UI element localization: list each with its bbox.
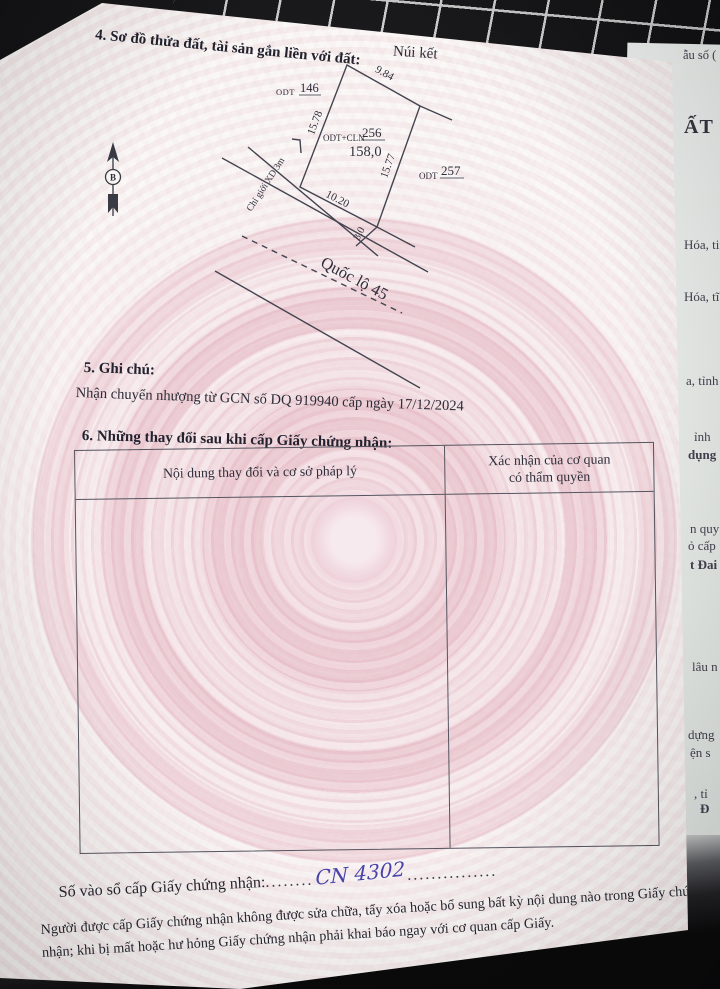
parcel-type: ODT+CLN: [323, 133, 365, 143]
adjacent-left-number: 146: [300, 81, 319, 95]
adjacent-right-number: 257: [441, 163, 461, 178]
north-letter: B: [110, 173, 116, 183]
parcel-diagram: Núi kết B ODT 146 O: [70, 30, 590, 400]
road-name-label: Quốc lộ 45: [318, 253, 392, 304]
adjacent-right-type: ODT: [419, 171, 438, 181]
bottom-edge-extension: [377, 227, 415, 247]
sheet-fragment: lâu n: [692, 659, 718, 675]
sheet-fragment: ẤT: [684, 116, 714, 139]
parcel-area: 158,0: [349, 144, 382, 160]
changes-table-col2-header-cell: Xác nhận của cơ quan có thẩm quyền: [445, 443, 653, 494]
changes-table-col2-empty-cell: [446, 492, 659, 848]
changes-table: Nội dung thay đổi và cơ sở pháp lý Xác n…: [74, 442, 660, 854]
changes-table-empty-row: [76, 492, 659, 853]
photographed-certificate: ẫu số ( ẤT Hóa, tin Hóa, tĩ a, tỉnh ỉnh …: [0, 0, 720, 989]
changes-table-col1-header-cell: Nội dung thay đổi và cơ sở pháp lý: [75, 446, 446, 499]
sheet-fragment: n quy: [690, 521, 719, 537]
north-arrow-icon: B: [106, 142, 121, 216]
adjacent-left-type: ODT: [276, 87, 295, 97]
sheet-fragment: dụng: [688, 447, 716, 463]
top-edge-extension: [420, 106, 452, 120]
sheet-fragment: Hóa, tĩ: [684, 289, 719, 305]
section5-title: 5. Ghi chú:: [83, 360, 155, 379]
certificate-page: 4. Sơ đồ thửa đất, tài sản gắn liền với …: [0, 0, 720, 989]
changes-table-col1-empty-cell: [76, 495, 451, 853]
construction-boundary-label: Chỉ giới XD 3m: [245, 156, 287, 214]
sheet-fragment: Hóa, tin: [684, 237, 720, 253]
edge-top-length: 9.84: [373, 63, 396, 83]
sheet-fragment: t Đai: [690, 557, 717, 573]
sheet-fragment: ện s: [690, 745, 711, 761]
col2-header-line1: Xác nhận của cơ quan: [488, 450, 610, 469]
registry-leader-dots: ........: [265, 872, 314, 891]
col2-header-line2: có thẩm quyền: [509, 468, 590, 486]
registry-trailing-dots: ...............: [407, 863, 498, 884]
changes-table-header-row: Nội dung thay đổi và cơ sở pháp lý Xác n…: [75, 443, 654, 500]
sheet-fragment: , tỉ: [694, 786, 708, 802]
sheet-fragment: ỏ cấp: [688, 538, 716, 554]
sheet-fragment: ẫu số (: [683, 48, 716, 63]
boundary-elbow-mark: [292, 139, 301, 153]
sheet-fragment: Đ: [700, 801, 709, 817]
place-label: Núi kết: [392, 43, 438, 62]
setback-distance: 3.0: [352, 226, 368, 243]
road-centerline: [242, 236, 402, 313]
col1-header-text: Nội dung thay đổi và cơ sở pháp lý: [163, 463, 357, 482]
sheet-fragment: a, tỉnh: [686, 373, 719, 389]
registry-label: Số vào sổ cấp Giấy chứng nhận:: [58, 874, 265, 901]
sheet-fragment: ỉnh: [694, 429, 711, 445]
parcel-number: 256: [362, 125, 382, 140]
sheet-fragment: dựng: [688, 727, 715, 743]
